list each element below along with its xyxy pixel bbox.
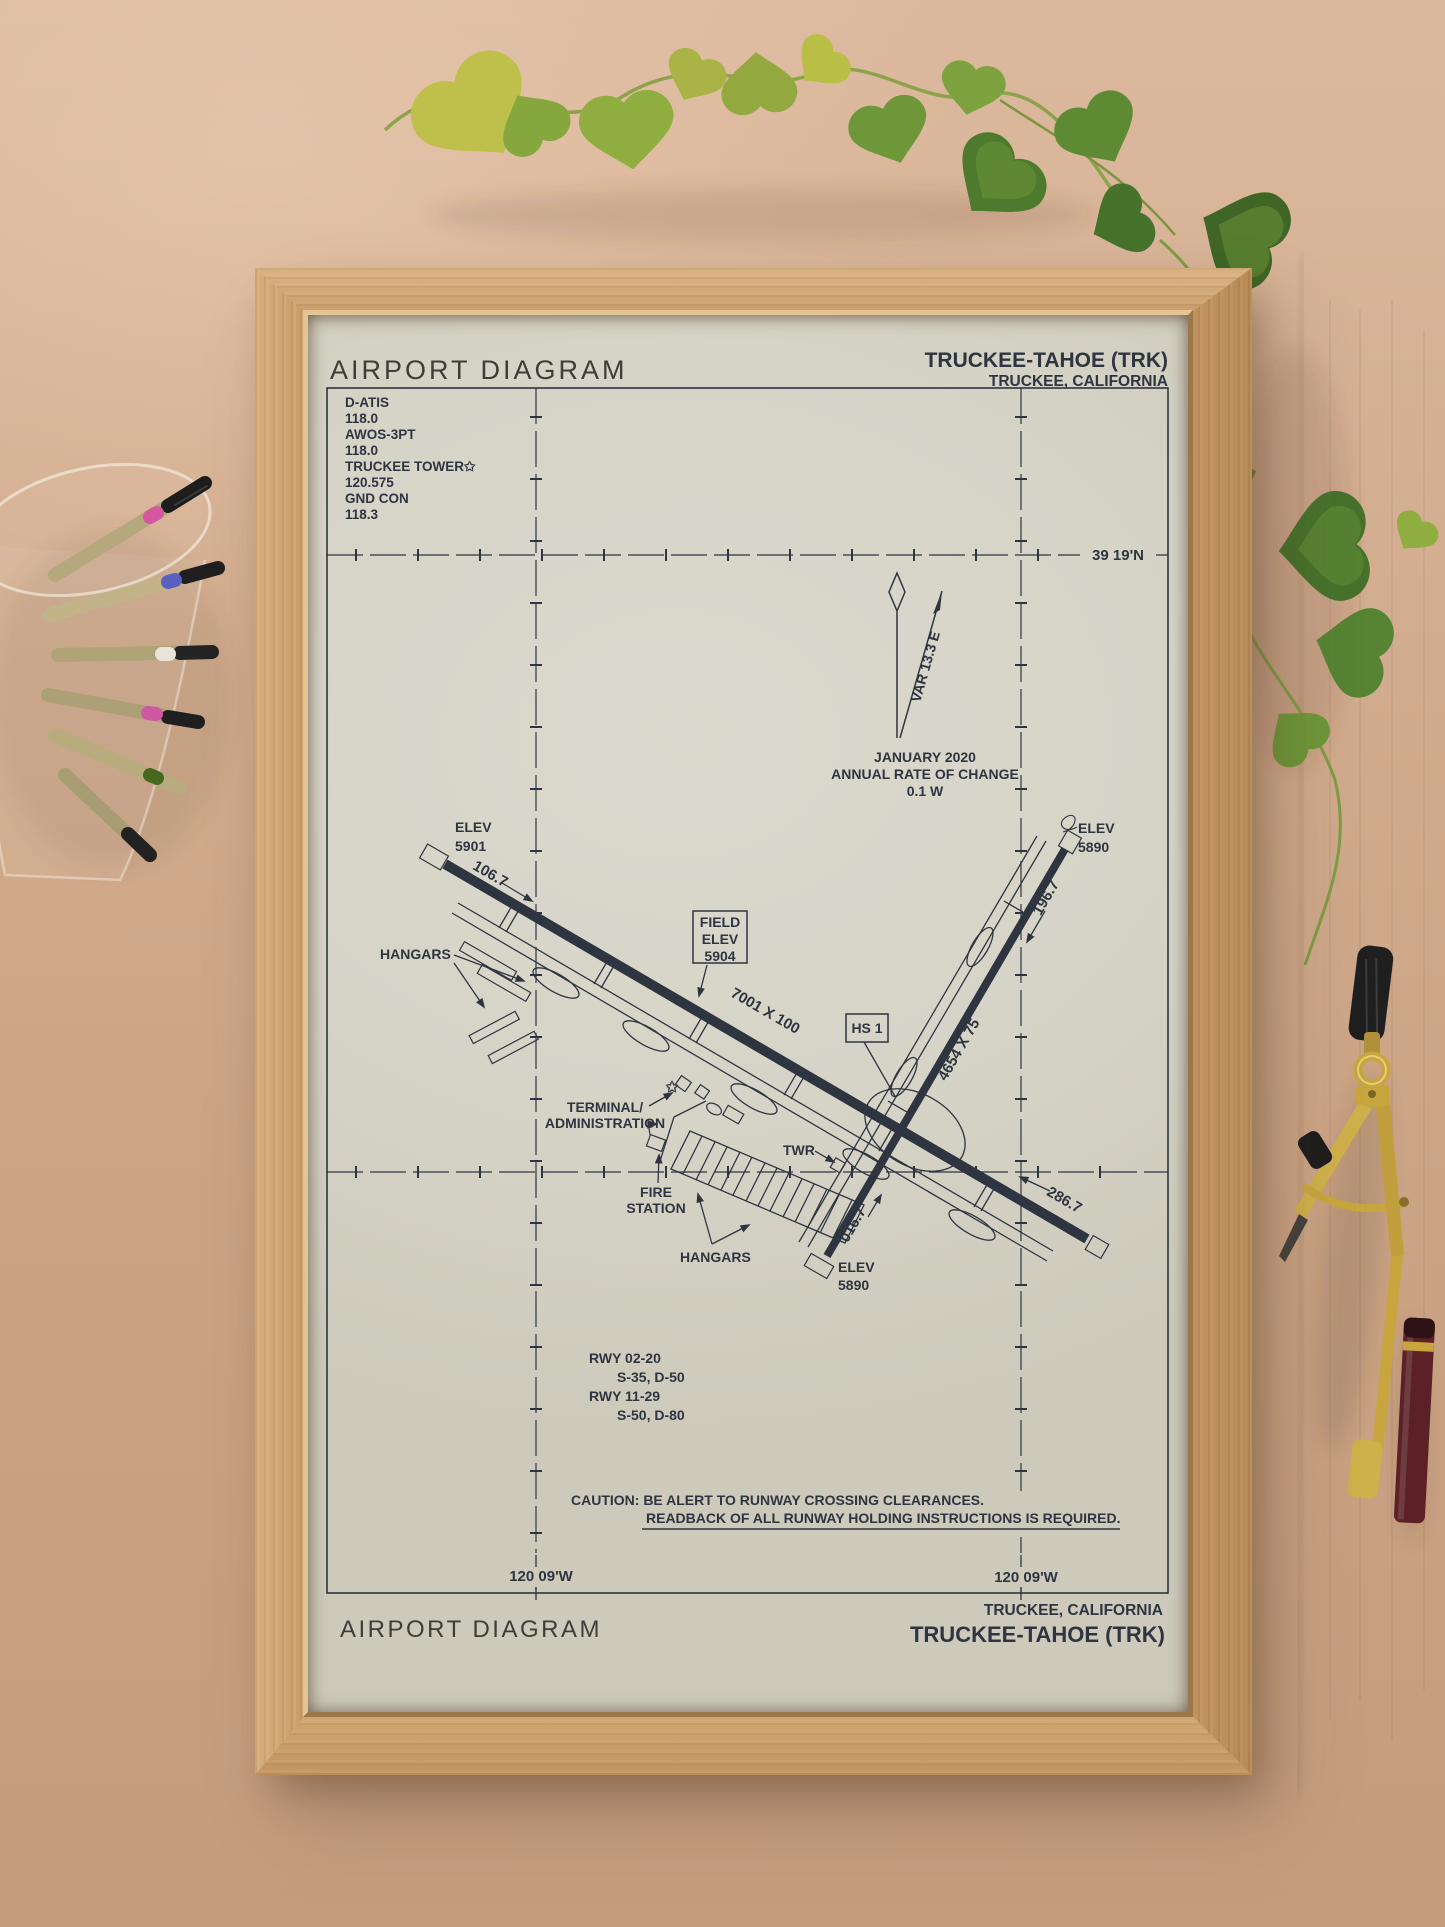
hangars-nw-label: HANGARS	[380, 946, 451, 962]
airport-diagram-print: AIRPORT DIAGRAM TRUCKEE-TAHOE (TRK) TRUC…	[308, 315, 1188, 1712]
rwy0220-north-elev-value: 5890	[1078, 839, 1109, 855]
rwy-table-line: S-35, D-50	[617, 1369, 685, 1385]
freq-line: 118.0	[345, 443, 378, 458]
terminal-label-l1: TERMINAL/	[567, 1099, 643, 1115]
rwy0220-south-elev-value: 5890	[838, 1277, 869, 1293]
pencil	[1394, 1317, 1436, 1523]
freq-line: 118.3	[345, 507, 379, 522]
caution-line-1: CAUTION: BE ALERT TO RUNWAY CROSSING CLE…	[571, 1492, 984, 1508]
frame-rail-left	[255, 268, 308, 1775]
rwy-table-line: RWY 02-20	[589, 1350, 661, 1366]
caution-line-2: READBACK OF ALL RUNWAY HOLDING INSTRUCTI…	[646, 1510, 1120, 1526]
rwy-table-line: S-50, D-80	[617, 1407, 685, 1423]
fire-station-label-l2: STATION	[626, 1200, 685, 1216]
freq-line: AWOS-3PT	[345, 427, 416, 442]
hangar-buildings-nw	[460, 942, 539, 1064]
hangars-south-label: HANGARS	[680, 1249, 751, 1265]
hotspot-label: HS 1	[851, 1020, 882, 1036]
rwy-table-line: RWY 11-29	[589, 1388, 660, 1404]
longitude-label-left: 120 09'W	[509, 1568, 573, 1585]
frame-rail-top	[255, 268, 1252, 315]
header-title: AIRPORT DIAGRAM	[330, 355, 628, 385]
fire-station-label-l1: FIRE	[640, 1184, 672, 1200]
magvar-date: JANUARY 2020	[874, 749, 976, 765]
footer-title: AIRPORT DIAGRAM	[340, 1616, 602, 1643]
field-elev-l3: 5904	[704, 948, 735, 964]
runway-data-table: RWY 02-20 S-35, D-50 RWY 11-29 S-50, D-8…	[589, 1350, 685, 1423]
footer-city: TRUCKEE, CALIFORNIA	[984, 1602, 1163, 1619]
footer-airport-name: TRUCKEE-TAHOE (TRK)	[910, 1622, 1165, 1647]
frequency-block: D-ATIS 118.0 AWOS-3PT 118.0 TRUCKEE TOWE…	[345, 395, 477, 522]
rwy0220-south-elev: ELEV	[838, 1259, 875, 1275]
rwy0220-north-elev: ELEV	[1078, 820, 1115, 836]
field-elev-l2: ELEV	[702, 931, 739, 947]
rwy1129-west-elev: ELEV	[455, 819, 492, 835]
hangar-rows-block	[671, 1131, 864, 1243]
freq-line: 120.575	[345, 475, 394, 490]
terminal-label-l2: ADMINISTRATION	[545, 1115, 665, 1131]
frame-rail-bottom	[255, 1712, 1252, 1775]
runway-11-29	[445, 864, 1087, 1239]
freq-line: D-ATIS	[345, 395, 389, 410]
field-elev-l1: FIELD	[700, 914, 740, 930]
rwy1129-dimensions: 7001 X 100	[728, 985, 803, 1038]
magnetic-variation-label: VAR 13.3 E	[907, 629, 942, 703]
tower-label: TWR	[783, 1142, 815, 1158]
header-airport-name: TRUCKEE-TAHOE (TRK)	[925, 349, 1168, 372]
longitude-label-right: 120 09'W	[994, 1569, 1058, 1586]
magvar-rate-value: 0.1 W	[907, 783, 944, 799]
latitude-label: 39 19'N	[1092, 547, 1144, 564]
freq-line: GND CON	[345, 491, 409, 506]
magvar-rate-label: ANNUAL RATE OF CHANGE	[831, 766, 1019, 782]
freq-line: 118.0	[345, 411, 378, 426]
rwy1129-west-elev-value: 5901	[455, 838, 486, 854]
freq-line: TRUCKEE TOWER✩	[345, 459, 477, 474]
picture-frame: AIRPORT DIAGRAM TRUCKEE-TAHOE (TRK) TRUC…	[255, 268, 1252, 1775]
frame-rail-right	[1188, 268, 1252, 1775]
runways	[420, 830, 1109, 1278]
